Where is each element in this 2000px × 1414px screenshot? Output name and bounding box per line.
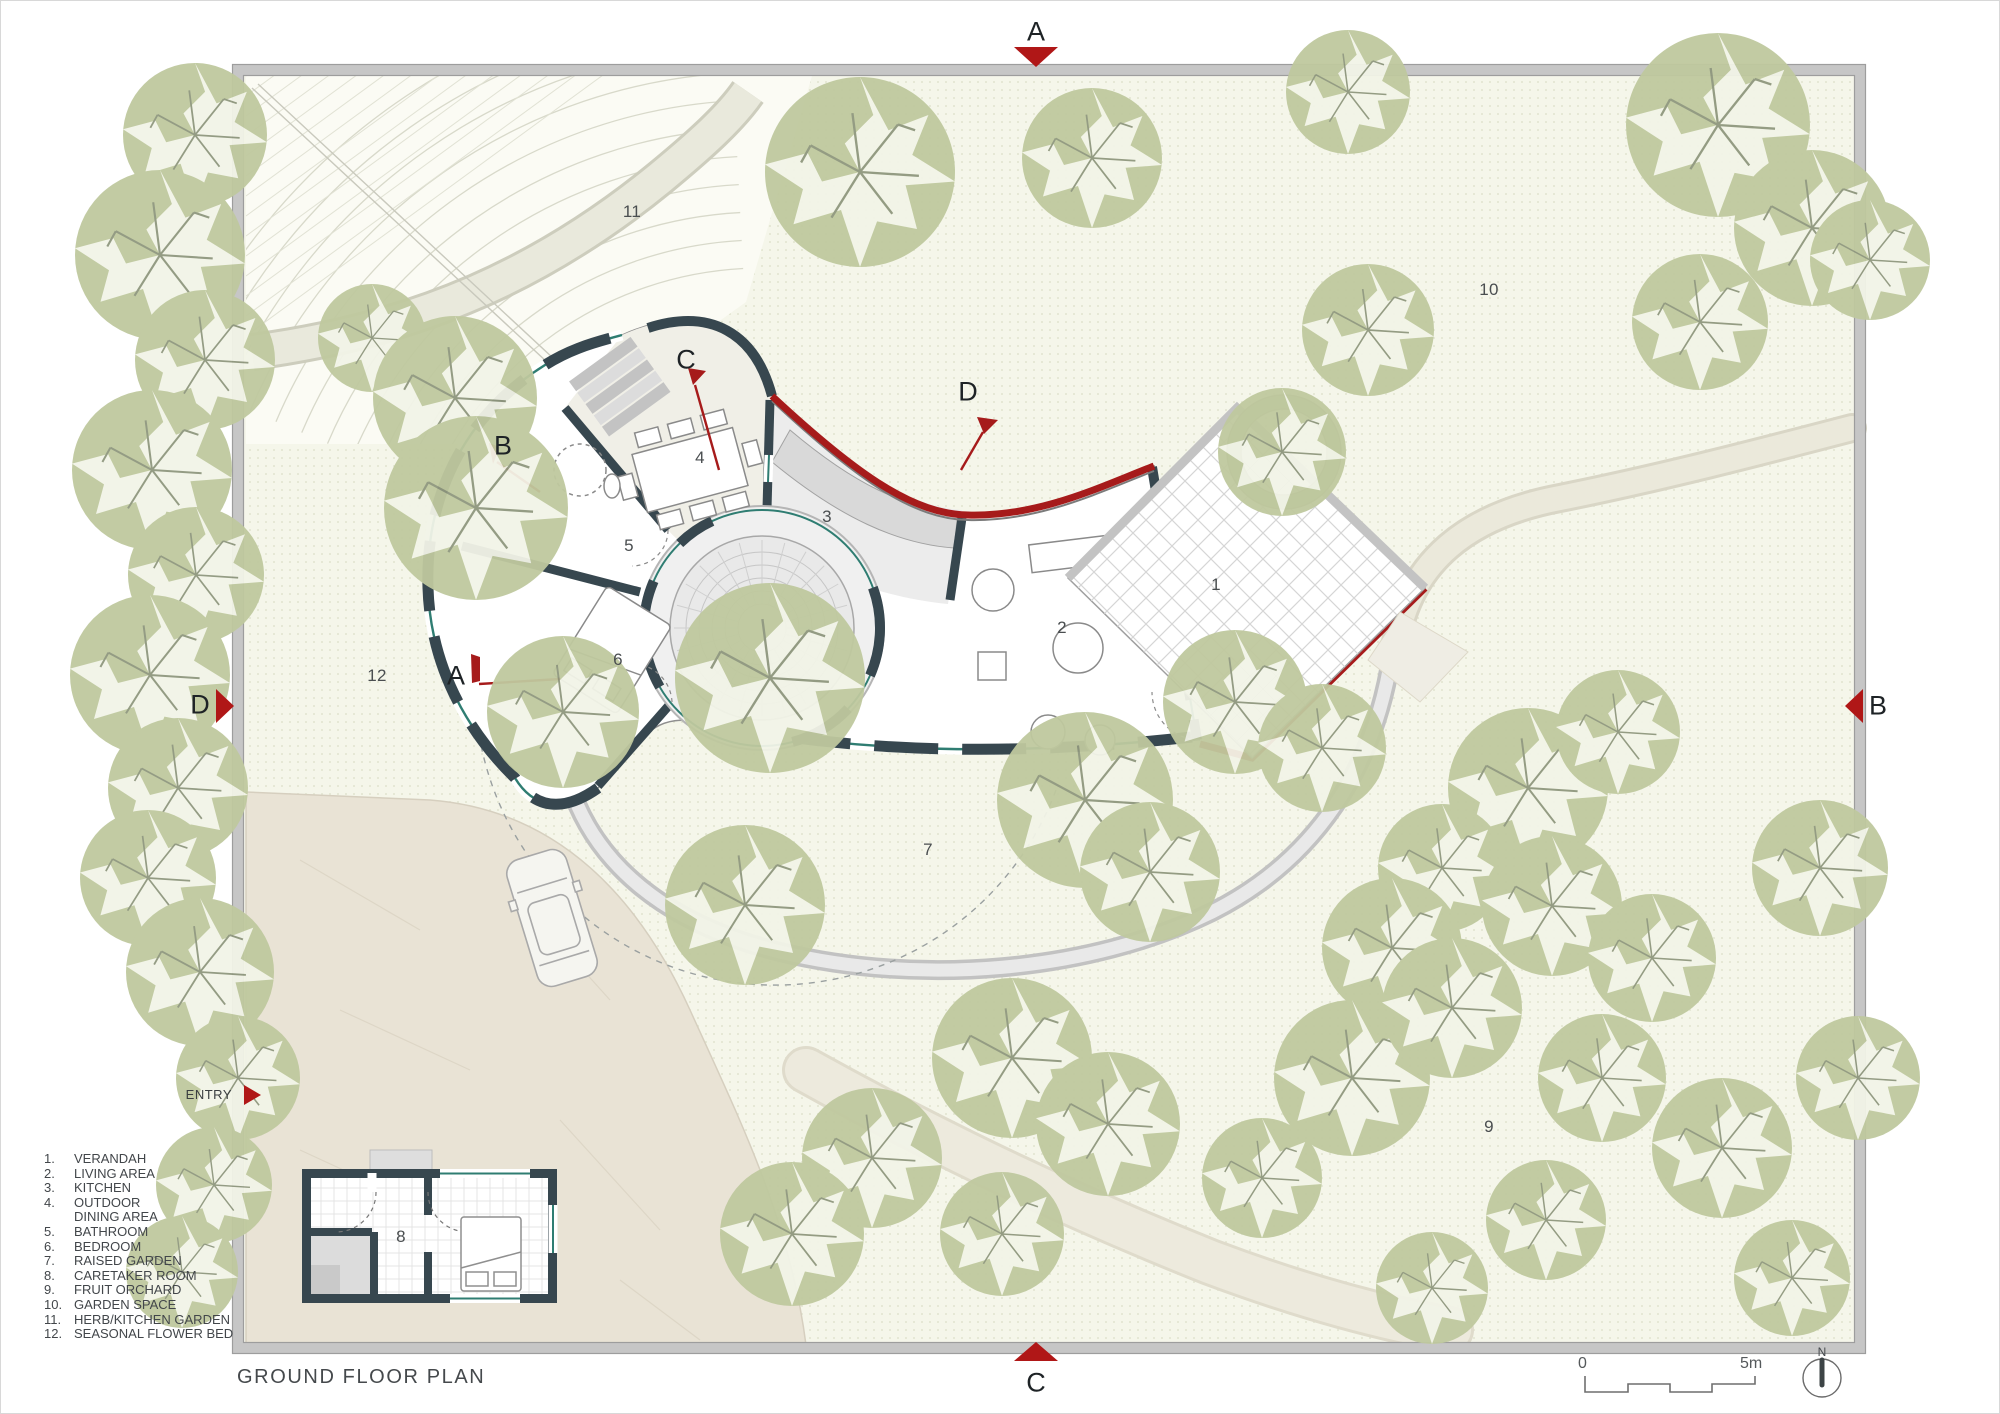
legend-number: 8. — [44, 1269, 74, 1284]
legend-row: 5.BATHROOM — [44, 1225, 254, 1240]
north-arrow — [1803, 1359, 1841, 1397]
room-label-6: 6 — [613, 650, 623, 670]
north-label: N — [1818, 1345, 1827, 1359]
legend-label: DINING AREA — [74, 1210, 254, 1225]
section-marker-b-triangle-icon — [1845, 689, 1863, 723]
legend-row: 8.CARETAKER ROOM — [44, 1269, 254, 1284]
scale-end-label: 5m — [1740, 1355, 1762, 1373]
legend-row: 9.FRUIT ORCHARD — [44, 1283, 254, 1298]
legend-row: DINING AREA — [44, 1210, 254, 1225]
tree — [665, 825, 825, 985]
tree — [1652, 1078, 1792, 1218]
section-marker-d-left: D — [190, 690, 210, 721]
legend-number: 2. — [44, 1167, 74, 1182]
room-label-12: 12 — [367, 666, 387, 686]
entry-label: ENTRY — [122, 1087, 232, 1102]
section-flag-b: B — [494, 431, 512, 462]
entry-arrow-icon — [244, 1085, 261, 1105]
legend-number: 11. — [44, 1313, 74, 1328]
section-flag-c: C — [676, 345, 696, 376]
room-label-2: 2 — [1057, 618, 1067, 638]
legend-number: 4. — [44, 1196, 74, 1211]
section-marker-a-top: A — [1027, 17, 1045, 48]
legend-number: 3. — [44, 1181, 74, 1196]
legend-label: CARETAKER ROOM — [74, 1269, 254, 1284]
tree — [1080, 802, 1220, 942]
legend-label: KITCHEN — [74, 1181, 254, 1196]
tree — [720, 1162, 864, 1306]
room-label-5: 5 — [624, 536, 634, 556]
legend-label: BATHROOM — [74, 1225, 254, 1240]
section-marker-c-triangle-icon — [1014, 1342, 1058, 1361]
caretaker-room — [302, 1150, 557, 1303]
legend-number — [44, 1210, 74, 1225]
room-label-11: 11 — [623, 202, 641, 222]
tree — [1810, 200, 1930, 320]
section-flag-d: D — [958, 377, 978, 408]
room-label-1: 1 — [1211, 575, 1221, 595]
drawing-title: GROUND FLOOR PLAN — [237, 1366, 485, 1389]
tree — [1556, 670, 1680, 794]
tree — [1752, 800, 1888, 936]
tree — [384, 416, 568, 600]
room-label-8: 8 — [396, 1227, 406, 1247]
legend-row: 4.OUTDOOR — [44, 1196, 254, 1211]
tree — [1302, 264, 1434, 396]
tree — [1632, 254, 1768, 390]
section-marker-a-triangle-icon — [1014, 47, 1058, 67]
legend-number: 5. — [44, 1225, 74, 1240]
tree — [940, 1172, 1064, 1296]
legend-label: RAISED GARDEN — [74, 1254, 254, 1269]
legend-row: 6.BEDROOM — [44, 1240, 254, 1255]
legend: 1.VERANDAH2.LIVING AREA3.KITCHEN4.OUTDOO… — [44, 1152, 254, 1342]
caretaker-bed — [461, 1217, 521, 1291]
legend-number: 6. — [44, 1240, 74, 1255]
tree — [765, 77, 955, 267]
tree — [1486, 1160, 1606, 1280]
legend-number: 1. — [44, 1152, 74, 1167]
legend-row: 3.KITCHEN — [44, 1181, 254, 1196]
section-marker-d-triangle-icon — [216, 689, 234, 723]
legend-row: 10.GARDEN SPACE — [44, 1298, 254, 1313]
room-label-10: 10 — [1479, 280, 1499, 300]
legend-label: BEDROOM — [74, 1240, 254, 1255]
legend-number: 9. — [44, 1283, 74, 1298]
section-flag-a: A — [447, 661, 465, 692]
legend-label: GARDEN SPACE — [74, 1298, 254, 1313]
scale-start-label: 0 — [1578, 1355, 1587, 1373]
room-label-7: 7 — [923, 840, 933, 860]
tree — [1734, 1220, 1850, 1336]
legend-number: 10. — [44, 1298, 74, 1313]
tree — [1376, 1232, 1488, 1344]
tree — [675, 583, 865, 773]
legend-label: LIVING AREA — [74, 1167, 254, 1182]
tree — [1538, 1014, 1666, 1142]
room-label-9: 9 — [1484, 1117, 1494, 1137]
legend-row: 12.SEASONAL FLOWER BED — [44, 1327, 254, 1342]
room-label-3: 3 — [822, 507, 832, 527]
legend-number: 7. — [44, 1254, 74, 1269]
room-label-4: 4 — [695, 448, 705, 468]
section-marker-c-bottom: C — [1026, 1368, 1046, 1399]
ground-floor-plan-sheet: 123456789101112 BCDA A C D B ENTRY 1.VER… — [0, 0, 2000, 1414]
legend-number: 12. — [44, 1327, 74, 1342]
legend-row: 1.VERANDAH — [44, 1152, 254, 1167]
site-plan-drawing — [0, 0, 2000, 1414]
tree — [1286, 30, 1410, 154]
tree — [1218, 388, 1346, 516]
toilet — [604, 474, 620, 498]
legend-label: VERANDAH — [74, 1152, 254, 1167]
tree — [176, 1016, 300, 1140]
tree — [1036, 1052, 1180, 1196]
tree — [1588, 894, 1716, 1022]
tree — [1258, 684, 1386, 812]
legend-label: HERB/KITCHEN GARDEN — [74, 1313, 254, 1328]
legend-label: OUTDOOR — [74, 1196, 254, 1211]
tree — [1022, 88, 1162, 228]
legend-row: 11.HERB/KITCHEN GARDEN — [44, 1313, 254, 1328]
legend-row: 2.LIVING AREA — [44, 1167, 254, 1182]
scale-bar — [1585, 1376, 1755, 1392]
section-marker-b-right: B — [1869, 691, 1887, 722]
tree — [1796, 1016, 1920, 1140]
legend-label: SEASONAL FLOWER BED — [74, 1327, 254, 1342]
tree — [1382, 938, 1522, 1078]
legend-row: 7.RAISED GARDEN — [44, 1254, 254, 1269]
legend-label: FRUIT ORCHARD — [74, 1283, 254, 1298]
